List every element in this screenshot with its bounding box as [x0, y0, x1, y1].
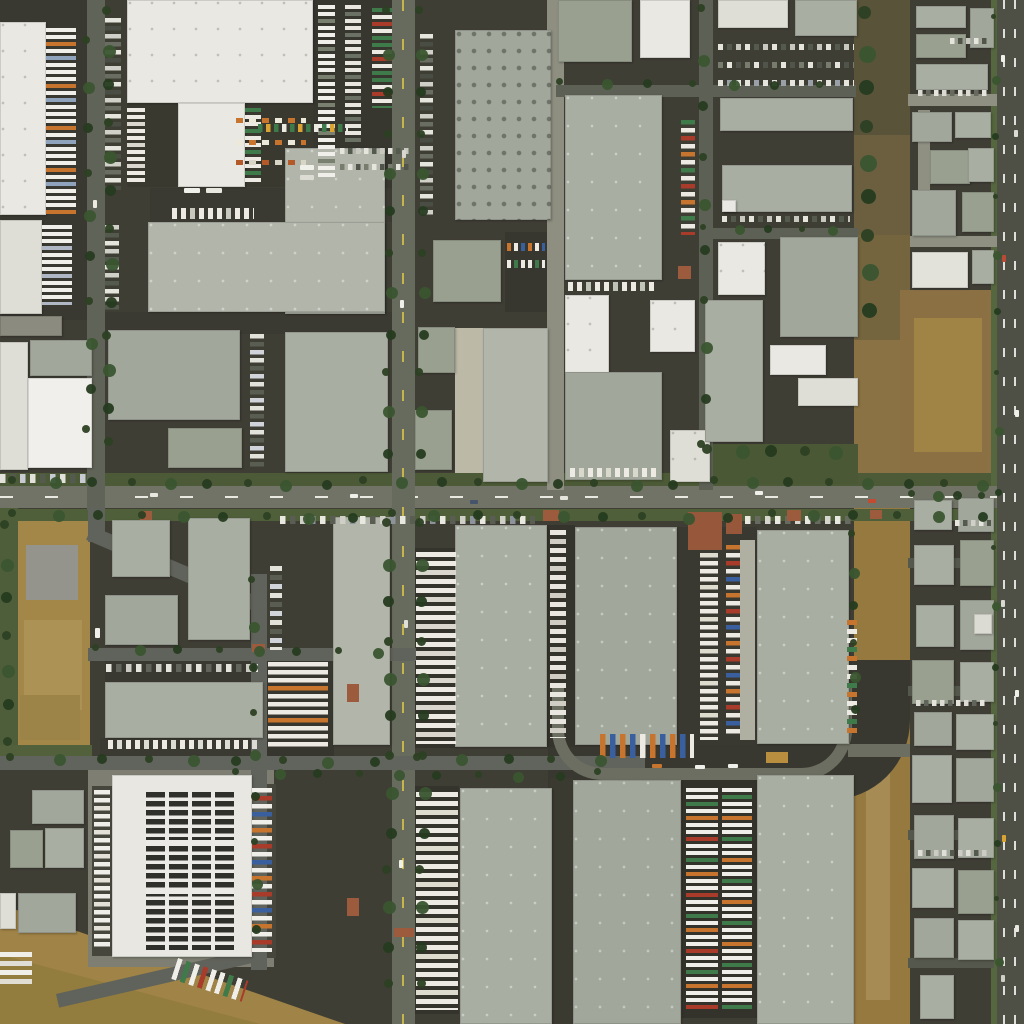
- tree: [638, 512, 646, 520]
- tree: [87, 477, 97, 487]
- trailer-row: [94, 790, 110, 950]
- tree: [547, 755, 555, 763]
- building: [127, 0, 313, 103]
- building: [565, 372, 662, 480]
- vehicle: [1002, 835, 1006, 842]
- building: [45, 828, 84, 868]
- tree: [105, 185, 116, 196]
- tree: [994, 370, 999, 375]
- tree: [248, 576, 255, 583]
- tree: [415, 368, 423, 376]
- tree: [218, 512, 228, 522]
- tree: [747, 477, 759, 489]
- pavement-marking: [787, 510, 801, 521]
- tree: [933, 511, 945, 523]
- pavement-marking: [347, 898, 359, 916]
- trailer-row: [268, 662, 328, 750]
- building: [962, 192, 994, 232]
- tree: [388, 509, 396, 517]
- lane-marking: [1003, 0, 1005, 1024]
- building: [565, 295, 609, 373]
- tree: [799, 226, 805, 232]
- building: [460, 788, 552, 1024]
- pavement-marking: [543, 510, 559, 521]
- tree: [994, 840, 1001, 847]
- tree: [83, 123, 93, 133]
- tree: [373, 648, 384, 659]
- building: [718, 242, 765, 295]
- trailer-row: [718, 62, 854, 68]
- tree: [292, 647, 301, 656]
- tree: [993, 721, 998, 726]
- tree: [359, 476, 367, 484]
- tree: [419, 287, 431, 299]
- tree: [413, 753, 421, 761]
- building: [914, 918, 954, 958]
- tree: [383, 449, 393, 459]
- tree: [697, 4, 705, 12]
- tree: [668, 480, 678, 490]
- tree: [3, 699, 14, 710]
- tree: [382, 6, 390, 14]
- vehicle: [1002, 255, 1006, 262]
- tree: [173, 645, 182, 654]
- tree: [993, 783, 1002, 792]
- tree: [54, 754, 66, 766]
- tree: [415, 518, 424, 527]
- tree: [85, 297, 93, 305]
- tree: [385, 751, 394, 760]
- tree: [800, 446, 810, 456]
- vehicle: [300, 175, 314, 180]
- tree: [252, 925, 261, 934]
- trailer-row: [950, 38, 990, 44]
- tree: [862, 264, 879, 281]
- trailer-row: [722, 788, 752, 1010]
- tree: [102, 331, 111, 340]
- tree: [417, 168, 429, 180]
- trailer-row: [420, 34, 433, 216]
- tree: [977, 480, 989, 492]
- tree: [82, 36, 90, 44]
- vehicle: [652, 764, 662, 768]
- building: [0, 220, 42, 314]
- building: [18, 893, 76, 933]
- tree: [861, 229, 874, 242]
- trailer-row: [236, 160, 306, 165]
- tree: [231, 756, 241, 766]
- building: [718, 0, 788, 28]
- tree: [475, 771, 482, 778]
- building: [640, 0, 690, 58]
- tree: [382, 368, 390, 376]
- tree: [279, 756, 287, 764]
- tree: [416, 406, 428, 418]
- tree: [383, 901, 396, 914]
- pavement-marking: [347, 684, 359, 702]
- trailer-row: [507, 243, 545, 251]
- tree: [904, 479, 914, 489]
- tree: [735, 225, 745, 235]
- building: [30, 340, 92, 376]
- trailer-row: [250, 334, 264, 470]
- building: [795, 0, 857, 36]
- tree: [808, 510, 820, 522]
- pavement-marking: [766, 752, 788, 763]
- trailer-row: [318, 5, 335, 177]
- tree: [848, 510, 858, 520]
- tree: [432, 771, 441, 780]
- tree: [103, 45, 116, 58]
- building: [720, 98, 853, 131]
- trailer-row: [270, 566, 282, 650]
- building: [757, 775, 854, 1024]
- building: [912, 190, 956, 236]
- building: [28, 378, 92, 468]
- tree: [598, 512, 608, 522]
- tree: [995, 427, 1004, 436]
- building: [955, 112, 991, 138]
- tree: [553, 479, 563, 489]
- tree: [699, 153, 707, 161]
- tree: [384, 130, 392, 138]
- trailer-row: [172, 208, 254, 219]
- tree: [418, 206, 428, 216]
- building: [108, 330, 240, 420]
- building: [105, 595, 178, 645]
- building: [32, 790, 84, 824]
- tree: [862, 478, 874, 490]
- ground-region: [854, 135, 910, 235]
- tree: [428, 510, 440, 522]
- tree: [0, 520, 9, 529]
- building: [573, 780, 681, 1024]
- tree: [383, 406, 395, 418]
- tree: [415, 865, 424, 874]
- vehicle: [150, 493, 158, 497]
- building: [558, 0, 632, 62]
- tree: [50, 477, 62, 489]
- ground-region: [26, 545, 78, 600]
- vehicle: [1015, 690, 1019, 697]
- tree: [849, 568, 860, 579]
- tree: [105, 224, 114, 233]
- tree: [594, 768, 601, 775]
- tree: [849, 601, 858, 610]
- tree: [178, 511, 190, 523]
- building: [705, 300, 763, 442]
- building: [912, 112, 952, 142]
- tree: [416, 449, 426, 459]
- tree: [683, 513, 695, 525]
- building: [333, 517, 390, 745]
- tree: [252, 879, 263, 890]
- tree: [698, 55, 710, 67]
- pavement-marking: [870, 510, 882, 519]
- tree: [513, 772, 524, 783]
- trailer-row: [726, 545, 740, 735]
- tree: [396, 477, 408, 489]
- building: [0, 893, 16, 929]
- trailer-row: [918, 850, 988, 856]
- building: [565, 95, 662, 280]
- tree: [602, 79, 613, 90]
- pavement-marking: [678, 266, 691, 279]
- building: [483, 328, 548, 482]
- trailer-row: [718, 44, 854, 50]
- building: [916, 64, 988, 90]
- tree: [643, 79, 652, 88]
- tree: [953, 491, 962, 500]
- building: [968, 148, 994, 182]
- trailer-row: [681, 120, 695, 235]
- tree: [992, 664, 999, 671]
- trailer-row: [700, 545, 718, 740]
- tree: [138, 511, 146, 519]
- tree: [416, 49, 428, 61]
- building: [920, 975, 954, 1019]
- tree: [275, 769, 286, 780]
- trailer-row: [916, 700, 986, 706]
- tree: [415, 6, 423, 14]
- tree: [384, 637, 393, 646]
- trailer-row: [600, 734, 694, 758]
- tree: [417, 979, 426, 988]
- building: [650, 300, 695, 352]
- aerial-satellite-image: [0, 0, 1024, 1024]
- pavement-marking: [146, 889, 234, 894]
- tree: [851, 705, 860, 714]
- building: [956, 714, 994, 750]
- tree: [590, 479, 598, 487]
- tree: [825, 478, 833, 486]
- tree: [474, 478, 482, 486]
- tree: [417, 130, 425, 138]
- tree: [385, 710, 396, 721]
- tree: [829, 446, 843, 460]
- tree: [313, 769, 322, 778]
- building: [188, 518, 250, 640]
- trailer-row: [280, 516, 535, 524]
- tree: [770, 81, 779, 90]
- tree: [104, 118, 113, 127]
- tree: [165, 478, 177, 490]
- tree: [135, 645, 146, 656]
- building: [956, 758, 994, 802]
- tree: [995, 489, 1002, 496]
- trailer-row: [0, 952, 32, 984]
- tree: [861, 189, 876, 204]
- building: [415, 410, 452, 470]
- tree: [356, 770, 363, 777]
- tree: [710, 476, 718, 484]
- tree: [84, 169, 92, 177]
- trailer-row: [236, 140, 306, 145]
- tree: [995, 958, 1004, 967]
- building: [722, 165, 852, 212]
- tree: [382, 518, 391, 527]
- tree: [103, 79, 114, 90]
- tree: [335, 647, 342, 654]
- tree: [383, 87, 393, 97]
- building: [916, 605, 954, 647]
- tree: [860, 155, 877, 172]
- tree: [2, 631, 11, 640]
- tree: [768, 509, 776, 517]
- building: [798, 378, 858, 406]
- building: [958, 870, 994, 914]
- tree: [991, 14, 996, 19]
- vehicle: [399, 860, 403, 868]
- building: [960, 540, 994, 586]
- vehicle: [1001, 600, 1005, 607]
- building: [780, 237, 858, 337]
- building: [148, 222, 385, 312]
- tree: [303, 513, 315, 525]
- tree: [417, 637, 426, 646]
- tree: [85, 251, 95, 261]
- tree: [456, 754, 468, 766]
- tree: [104, 437, 113, 446]
- tree: [556, 78, 563, 85]
- tree: [419, 787, 432, 800]
- tree: [994, 308, 1001, 315]
- tree: [850, 672, 861, 683]
- ground-region: [854, 0, 910, 135]
- tree: [383, 596, 394, 607]
- tree: [106, 297, 117, 308]
- tree: [250, 709, 257, 716]
- tree: [858, 6, 871, 19]
- tree: [699, 199, 711, 211]
- tree: [516, 478, 528, 490]
- tree: [254, 646, 265, 657]
- tree: [386, 287, 398, 299]
- tree: [53, 510, 65, 522]
- building: [178, 103, 245, 187]
- tree: [1, 559, 14, 572]
- tree: [558, 511, 570, 523]
- tree: [385, 206, 395, 216]
- trailer-row: [918, 90, 988, 96]
- building: [168, 428, 242, 468]
- building: [912, 660, 954, 704]
- tree: [848, 530, 855, 537]
- building: [575, 527, 677, 745]
- lane-marking: [1014, 0, 1016, 1024]
- trailer-row: [42, 225, 72, 305]
- trailer-row: [106, 664, 258, 672]
- tree: [92, 644, 99, 651]
- tree: [504, 754, 514, 764]
- tree: [86, 384, 96, 394]
- tree: [700, 224, 706, 230]
- tree: [418, 249, 426, 257]
- tree: [385, 249, 393, 257]
- tree: [2, 665, 15, 678]
- building: [105, 682, 263, 738]
- trailer-row: [340, 148, 410, 154]
- tree: [992, 76, 1001, 85]
- tree: [82, 425, 90, 433]
- ground-region: [20, 695, 80, 740]
- building: [958, 920, 994, 960]
- tree: [383, 49, 395, 61]
- tree: [83, 82, 95, 94]
- tree: [106, 258, 119, 271]
- tree: [103, 364, 116, 377]
- tree: [370, 757, 380, 767]
- building: [912, 755, 952, 803]
- tree: [8, 476, 16, 484]
- trailer-row: [46, 28, 76, 214]
- tree: [473, 510, 483, 520]
- tree: [736, 445, 750, 459]
- building: [0, 316, 62, 336]
- vehicle: [1001, 55, 1005, 62]
- tree: [6, 753, 14, 761]
- trailer-row: [340, 164, 410, 170]
- tree: [251, 838, 258, 845]
- tree: [384, 168, 396, 180]
- building: [930, 150, 970, 184]
- building: [912, 868, 954, 908]
- vehicle: [206, 188, 222, 193]
- vehicle: [1015, 925, 1019, 932]
- tree: [513, 511, 521, 519]
- solar-panel-array: [146, 792, 234, 950]
- building: [670, 430, 710, 482]
- tree: [908, 490, 915, 497]
- building: [770, 345, 826, 375]
- tree: [416, 87, 426, 97]
- trailer-row: [108, 740, 258, 749]
- vehicle: [93, 200, 97, 208]
- tree: [348, 513, 358, 523]
- tree: [860, 120, 873, 133]
- building: [455, 30, 551, 220]
- trailer-row: [568, 282, 658, 291]
- road: [848, 744, 910, 757]
- vehicle: [350, 494, 358, 498]
- building: [433, 240, 501, 302]
- tree: [416, 559, 429, 572]
- tree: [394, 770, 405, 781]
- vehicle: [695, 765, 705, 769]
- tree: [249, 622, 260, 633]
- trailer-row: [570, 468, 658, 477]
- ground-region: [455, 328, 483, 482]
- tree: [216, 646, 223, 653]
- tree: [702, 444, 712, 454]
- vehicle: [400, 300, 404, 308]
- building: [112, 520, 170, 577]
- vehicle: [868, 499, 876, 503]
- building: [757, 530, 849, 744]
- trailer-row: [105, 18, 121, 190]
- building: [960, 662, 994, 702]
- tree: [701, 394, 711, 404]
- tree: [992, 133, 999, 140]
- ground-region: [914, 318, 982, 452]
- tree: [978, 492, 985, 499]
- vehicle: [1001, 975, 1005, 982]
- tree: [322, 757, 334, 769]
- tree: [251, 792, 260, 801]
- vehicle: [402, 150, 406, 158]
- trailer-row: [722, 216, 850, 222]
- tree: [701, 342, 713, 354]
